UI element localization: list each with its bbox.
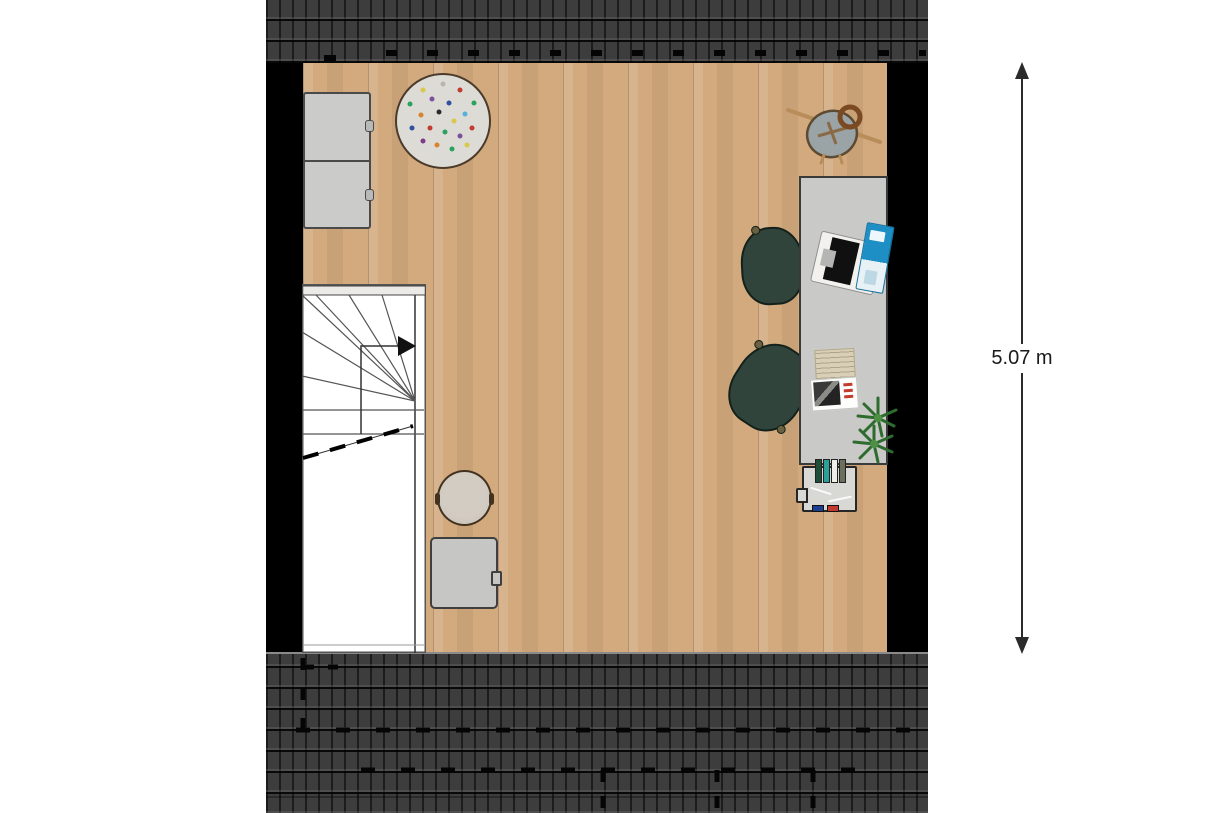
- rug: [395, 73, 491, 169]
- rug-dot: [437, 109, 442, 114]
- pouf-handle: [489, 493, 494, 505]
- magazine-text-mark: [844, 389, 853, 393]
- book: [823, 459, 830, 483]
- shelf-divider: [810, 487, 832, 496]
- pouf: [437, 470, 492, 526]
- dimension-arrow-down-icon: [1015, 637, 1029, 654]
- notebook-label: [869, 230, 886, 242]
- roof-vent-dashes: [266, 0, 928, 63]
- book: [831, 459, 838, 483]
- rug-dot: [470, 126, 475, 131]
- floor-plan-canvas: 5.07 m: [0, 0, 1220, 813]
- left-wall: [266, 63, 303, 652]
- book: [812, 505, 824, 512]
- rug-dot: [457, 133, 462, 138]
- rug-dot: [420, 87, 425, 92]
- bookshelf: [802, 466, 857, 512]
- dimension-label: 5.07 m: [985, 344, 1058, 373]
- rug-dot: [446, 100, 451, 105]
- paper-document: [814, 348, 856, 380]
- rug-dot: [418, 113, 423, 118]
- pouf-handle: [435, 493, 440, 505]
- books-row: [812, 505, 839, 512]
- rug-dot: [409, 126, 414, 131]
- storage-cabinets: [303, 92, 371, 229]
- cabinet-handle: [365, 120, 374, 132]
- rug-dot: [450, 146, 455, 151]
- side-table: [430, 537, 498, 609]
- notebook-pages: [863, 270, 877, 286]
- rug-dot: [435, 142, 440, 147]
- cabinet-handle: [365, 189, 374, 201]
- book: [815, 459, 822, 483]
- book: [827, 505, 839, 512]
- rug-dot: [457, 87, 462, 92]
- roof-tiles-bottom: [266, 652, 928, 813]
- winder-staircase: [302, 284, 426, 653]
- rug-dot: [442, 130, 447, 135]
- plants: [850, 396, 898, 466]
- bookshelf-bump: [796, 488, 808, 503]
- rug-dot: [452, 119, 457, 124]
- books-row: [815, 459, 846, 483]
- rug-dot: [420, 139, 425, 144]
- rug-dot: [441, 82, 446, 87]
- rug-dot: [428, 126, 433, 131]
- roof-tiles-top: [266, 0, 928, 63]
- chair-tab: [751, 226, 760, 235]
- cabinet-divider: [305, 160, 369, 162]
- right-wall: [887, 63, 928, 652]
- magazine-text-mark: [843, 383, 852, 387]
- rug-dot: [407, 102, 412, 107]
- rug-dot: [472, 100, 477, 105]
- rug-dot: [464, 142, 469, 147]
- dimension-arrow-up-icon: [1015, 62, 1029, 79]
- book: [839, 459, 846, 483]
- roof-hidden-lines: [266, 654, 928, 813]
- shelf-divider: [828, 496, 852, 503]
- magazine-photo: [813, 381, 841, 407]
- side-table-handle: [491, 571, 502, 586]
- rug-dot: [463, 111, 468, 116]
- rug-dot: [429, 96, 434, 101]
- bag-with-strap: [780, 88, 890, 168]
